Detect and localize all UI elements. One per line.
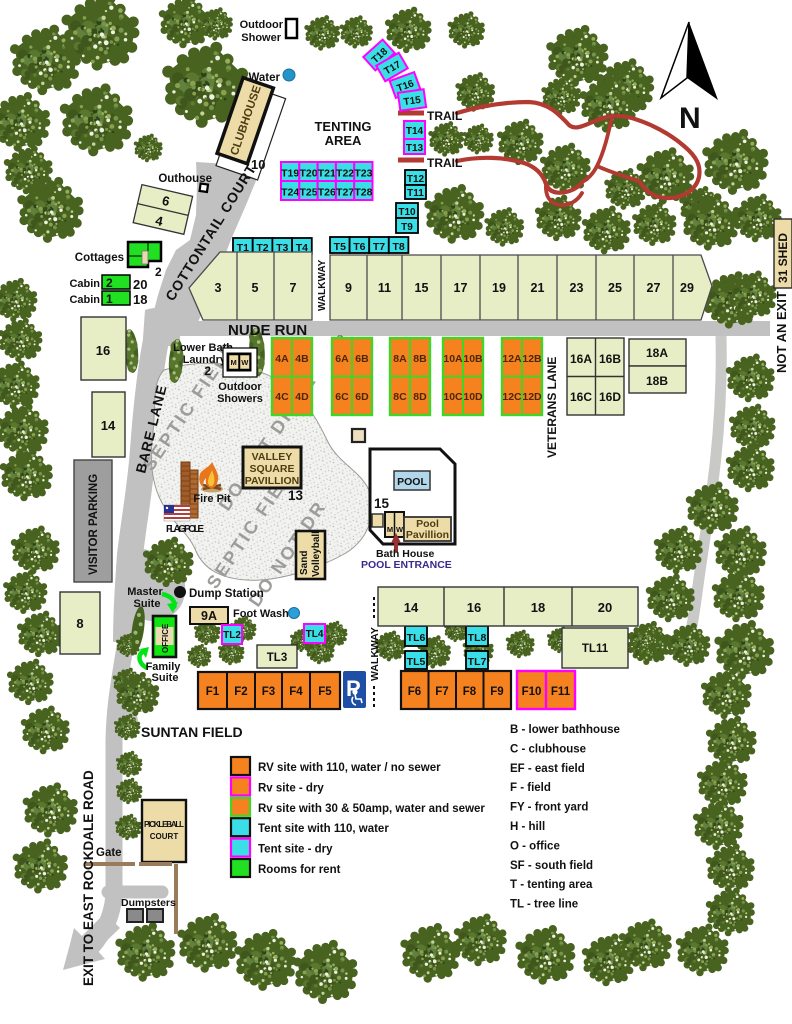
svg-text:F9: F9 bbox=[490, 686, 503, 698]
svg-text:4A: 4A bbox=[275, 353, 289, 365]
svg-text:T20: T20 bbox=[299, 168, 317, 180]
svg-text:Master: Master bbox=[127, 586, 163, 598]
svg-text:TL2: TL2 bbox=[223, 630, 241, 641]
svg-text:Tent site with 110, water: Tent site with 110, water bbox=[258, 823, 389, 835]
svg-text:20: 20 bbox=[133, 277, 147, 292]
svg-text:T9: T9 bbox=[401, 222, 413, 233]
svg-text:NUDE RUN: NUDE RUN bbox=[228, 322, 307, 339]
svg-text:TL6: TL6 bbox=[407, 632, 426, 644]
svg-text:F11: F11 bbox=[551, 686, 571, 698]
svg-text:Cabin: Cabin bbox=[69, 278, 100, 290]
svg-text:EXIT TO EAST ROCKDALE ROAD: EXIT TO EAST ROCKDALE ROAD bbox=[81, 770, 96, 986]
svg-text:WALKWAY: WALKWAY bbox=[369, 627, 381, 681]
svg-text:18B: 18B bbox=[646, 374, 668, 388]
svg-text:Outdoor: Outdoor bbox=[218, 381, 262, 393]
svg-text:C - clubhouse: C - clubhouse bbox=[510, 743, 586, 755]
svg-text:12C: 12C bbox=[502, 391, 522, 403]
svg-text:F2: F2 bbox=[234, 686, 247, 698]
svg-text:T12: T12 bbox=[407, 174, 425, 185]
svg-text:AREA: AREA bbox=[325, 133, 362, 148]
svg-text:T10: T10 bbox=[398, 207, 416, 218]
svg-text:14: 14 bbox=[101, 418, 116, 433]
svg-text:Dump Station: Dump Station bbox=[189, 588, 264, 600]
svg-text:20: 20 bbox=[598, 600, 612, 615]
svg-text:8D: 8D bbox=[413, 391, 427, 403]
svg-text:T13: T13 bbox=[406, 143, 424, 154]
svg-text:4C: 4C bbox=[275, 391, 289, 403]
svg-text:T28: T28 bbox=[354, 187, 372, 199]
svg-text:6C: 6C bbox=[335, 391, 349, 403]
svg-text:31 SHED: 31 SHED bbox=[776, 233, 790, 283]
svg-text:Volleyball: Volleyball bbox=[311, 531, 322, 577]
svg-text:H - hill: H - hill bbox=[510, 821, 545, 833]
svg-text:3: 3 bbox=[215, 281, 222, 295]
svg-text:6A: 6A bbox=[335, 353, 349, 365]
svg-text:6D: 6D bbox=[355, 391, 369, 403]
svg-text:F3: F3 bbox=[262, 686, 275, 698]
svg-text:VETERANS LANE: VETERANS LANE bbox=[545, 357, 559, 458]
svg-text:25: 25 bbox=[608, 281, 622, 295]
svg-text:W: W bbox=[396, 525, 404, 534]
svg-text:M: M bbox=[230, 358, 236, 367]
svg-text:Outdoor: Outdoor bbox=[240, 19, 284, 31]
svg-text:TRAIL: TRAIL bbox=[427, 156, 462, 170]
svg-text:16C: 16C bbox=[570, 390, 592, 404]
svg-text:F4: F4 bbox=[289, 686, 303, 698]
svg-text:19: 19 bbox=[492, 281, 506, 295]
svg-text:18: 18 bbox=[531, 600, 545, 615]
svg-text:2: 2 bbox=[155, 265, 162, 279]
svg-text:2: 2 bbox=[204, 364, 211, 378]
svg-text:F8: F8 bbox=[463, 686, 477, 698]
svg-text:F5: F5 bbox=[318, 686, 332, 698]
svg-text:TL - tree line: TL - tree line bbox=[510, 899, 578, 911]
svg-text:Rv site - dry: Rv site - dry bbox=[258, 782, 324, 794]
svg-text:POOL ENTRANCE: POOL ENTRANCE bbox=[361, 559, 452, 571]
svg-text:PICKLEBALL: PICKLEBALL bbox=[144, 820, 184, 829]
svg-text:8B: 8B bbox=[413, 353, 427, 365]
svg-text:FY - front yard: FY - front yard bbox=[510, 802, 588, 814]
svg-text:T26: T26 bbox=[318, 187, 336, 199]
svg-text:T21: T21 bbox=[318, 168, 336, 180]
svg-text:TRAIL: TRAIL bbox=[427, 109, 462, 123]
svg-text:TENTING: TENTING bbox=[314, 119, 371, 134]
svg-text:4B: 4B bbox=[295, 353, 309, 365]
svg-text:17: 17 bbox=[454, 281, 468, 295]
svg-text:Rv site with 30 & 50amp, water: Rv site with 30 & 50amp, water and sewer bbox=[258, 803, 485, 815]
svg-text:COURT: COURT bbox=[150, 832, 179, 841]
svg-text:11: 11 bbox=[378, 281, 391, 295]
svg-text:T25: T25 bbox=[299, 187, 317, 199]
svg-text:T11: T11 bbox=[407, 188, 424, 199]
svg-text:Dumpsters: Dumpsters bbox=[121, 897, 176, 909]
svg-text:POOL: POOL bbox=[397, 476, 427, 488]
svg-text:EF - east field: EF - east field bbox=[510, 763, 585, 775]
svg-text:10A: 10A bbox=[443, 353, 463, 365]
svg-text:Pavillion: Pavillion bbox=[406, 529, 449, 541]
svg-text:4D: 4D bbox=[295, 391, 309, 403]
svg-text:TL11: TL11 bbox=[582, 643, 609, 655]
svg-text:6B: 6B bbox=[355, 353, 369, 365]
svg-text:15: 15 bbox=[374, 496, 390, 511]
svg-text:T8: T8 bbox=[392, 241, 404, 253]
svg-text:SUNTAN FIELD: SUNTAN FIELD bbox=[141, 724, 243, 740]
svg-text:16D: 16D bbox=[599, 390, 621, 404]
svg-text:OFFICE: OFFICE bbox=[161, 623, 170, 653]
svg-text:12D: 12D bbox=[522, 391, 542, 403]
svg-text:T24: T24 bbox=[281, 187, 299, 199]
svg-text:B - lower bathhouse: B - lower bathhouse bbox=[510, 724, 620, 736]
svg-text:1: 1 bbox=[106, 292, 113, 306]
svg-text:FLAG POLE: FLAG POLE bbox=[166, 524, 204, 535]
svg-text:T19: T19 bbox=[281, 168, 299, 180]
svg-text:12B: 12B bbox=[522, 353, 542, 365]
svg-text:O - office: O - office bbox=[510, 840, 560, 852]
svg-text:9A: 9A bbox=[201, 609, 217, 623]
svg-text:SF - south field: SF - south field bbox=[510, 860, 593, 872]
svg-text:Tent site - dry: Tent site - dry bbox=[258, 844, 333, 856]
svg-text:Gate: Gate bbox=[96, 847, 122, 859]
svg-text:13: 13 bbox=[288, 488, 304, 503]
svg-text:9: 9 bbox=[345, 281, 352, 295]
svg-text:TL7: TL7 bbox=[468, 656, 487, 668]
svg-text:T - tenting area: T - tenting area bbox=[510, 879, 593, 891]
svg-text:Sand: Sand bbox=[299, 551, 310, 575]
svg-text:10D: 10D bbox=[463, 391, 483, 403]
svg-text:10C: 10C bbox=[443, 391, 463, 403]
svg-text:21: 21 bbox=[531, 281, 545, 295]
svg-text:F10: F10 bbox=[522, 686, 542, 698]
svg-text:N: N bbox=[679, 102, 701, 135]
svg-text:8A: 8A bbox=[393, 353, 407, 365]
svg-text:16A: 16A bbox=[570, 352, 592, 366]
svg-text:16B: 16B bbox=[599, 352, 621, 366]
svg-text:F1: F1 bbox=[206, 686, 220, 698]
svg-text:SQUARE: SQUARE bbox=[250, 463, 295, 475]
svg-text:TL5: TL5 bbox=[407, 656, 426, 668]
svg-text:18: 18 bbox=[133, 292, 147, 307]
svg-text:23: 23 bbox=[570, 281, 584, 295]
svg-text:F7: F7 bbox=[435, 686, 448, 698]
svg-text:T6: T6 bbox=[353, 241, 365, 253]
svg-text:VALLEY: VALLEY bbox=[252, 451, 293, 463]
svg-text:Showers: Showers bbox=[217, 393, 263, 405]
svg-text:T5: T5 bbox=[334, 241, 346, 253]
svg-text:18A: 18A bbox=[646, 346, 668, 360]
svg-text:5: 5 bbox=[252, 281, 259, 295]
svg-text:RV site with 110, water / no s: RV site with 110, water / no sewer bbox=[258, 762, 441, 774]
svg-text:TL3: TL3 bbox=[267, 652, 287, 664]
svg-text:T7: T7 bbox=[373, 241, 385, 253]
svg-text:VISITOR PARKING: VISITOR PARKING bbox=[88, 474, 100, 575]
svg-text:T14: T14 bbox=[406, 126, 424, 137]
svg-text:F6: F6 bbox=[408, 686, 421, 698]
svg-text:Cabin: Cabin bbox=[69, 294, 100, 306]
svg-text:16: 16 bbox=[96, 343, 110, 358]
svg-text:T22: T22 bbox=[336, 168, 354, 180]
svg-text:Cottages: Cottages bbox=[75, 252, 124, 264]
svg-text:8: 8 bbox=[76, 616, 83, 631]
svg-text:Suite: Suite bbox=[134, 598, 161, 610]
svg-text:7: 7 bbox=[290, 281, 297, 295]
svg-text:T23: T23 bbox=[354, 168, 372, 180]
svg-text:T27: T27 bbox=[336, 187, 354, 199]
svg-text:F - field: F - field bbox=[510, 782, 551, 794]
svg-text:W: W bbox=[241, 358, 249, 367]
svg-text:2: 2 bbox=[106, 276, 113, 290]
svg-text:27: 27 bbox=[647, 281, 661, 295]
svg-text:8C: 8C bbox=[393, 391, 407, 403]
svg-text:Suite: Suite bbox=[152, 672, 179, 684]
svg-text:NOT AN EXIT: NOT AN EXIT bbox=[774, 291, 789, 373]
svg-text:Foot Wash: Foot Wash bbox=[233, 608, 289, 620]
svg-text:TL4: TL4 bbox=[306, 629, 324, 640]
svg-text:14: 14 bbox=[404, 600, 419, 615]
svg-text:29: 29 bbox=[680, 281, 694, 295]
svg-text:M: M bbox=[387, 525, 393, 534]
svg-text:PAVILLION: PAVILLION bbox=[245, 475, 299, 487]
svg-text:10B: 10B bbox=[463, 353, 483, 365]
svg-text:WALKWAY: WALKWAY bbox=[317, 259, 328, 311]
svg-text:Rooms for rent: Rooms for rent bbox=[258, 864, 341, 876]
svg-text:Shower: Shower bbox=[241, 32, 281, 44]
svg-text:12A: 12A bbox=[502, 353, 522, 365]
svg-text:Fire Pit: Fire Pit bbox=[193, 493, 231, 505]
svg-text:16: 16 bbox=[467, 600, 481, 615]
svg-text:15: 15 bbox=[415, 281, 429, 295]
svg-text:TL8: TL8 bbox=[468, 632, 487, 644]
